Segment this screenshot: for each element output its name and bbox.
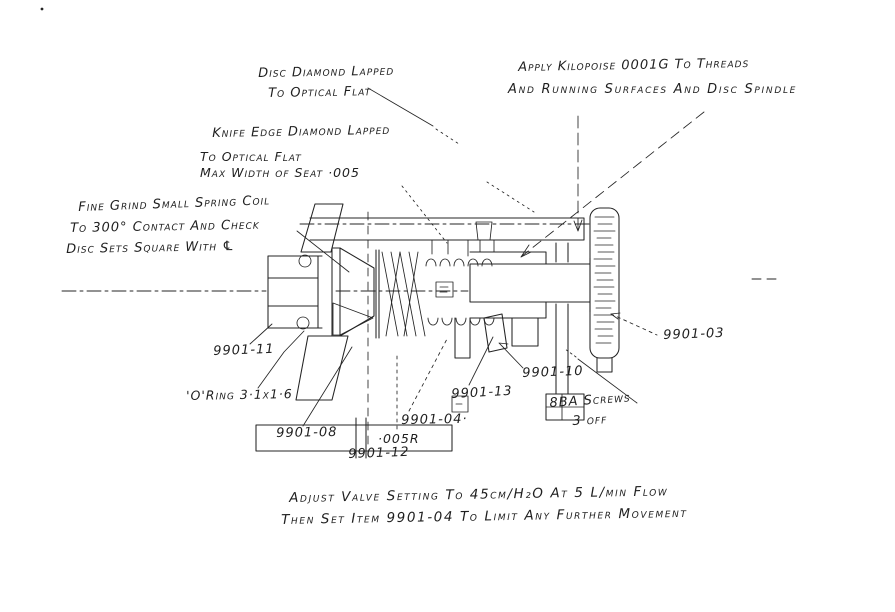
note-kilopoise-line2: And Running Surfaces And Disc Spindle [508, 82, 797, 97]
body-hatched-wedge [296, 336, 348, 400]
paper-speck [41, 8, 44, 11]
label-part-9901-13: 9901-13 [451, 384, 513, 402]
label-part-9901-10: 9901-10 [522, 364, 584, 381]
label-part-9901-08: 9901-08 [276, 425, 338, 441]
note-disc-lapped-line2: To Optical Flat [268, 84, 371, 101]
note-knife-edge-line3: Max Width of Seat ·005 [200, 165, 360, 180]
top-plate [301, 204, 584, 252]
note-knife-edge-line2: To Optical Flat [200, 149, 302, 164]
label-o-ring: 'O'Ring 3·1x1·6 [186, 386, 293, 403]
note-disc-lapped-line1: Disc Diamond Lapped [258, 64, 394, 81]
spring [376, 250, 494, 338]
label-part-9901-03: 9901-03 [663, 326, 725, 343]
drawing-sheet: Disc Diamond Lapped To Optical Flat Appl… [0, 0, 895, 612]
label-part-9901-04: 9901-04· [401, 412, 468, 428]
note-fine-grind-line3: Disc Sets Square With ℄ [66, 239, 235, 257]
spindle [436, 252, 590, 318]
knurled-knob [590, 208, 619, 372]
seat-insert [432, 222, 494, 256]
label-part-9901-11: 9901-11 [213, 342, 275, 359]
inlet-fitting [268, 255, 322, 329]
label-screws-line2: 3 off [572, 412, 608, 429]
note-knife-edge-line1: Knife Edge Diamond Lapped [212, 123, 390, 141]
label-radius-005r: ·005R [378, 431, 420, 446]
label-part-9901-12: 9901-12 [348, 445, 410, 462]
